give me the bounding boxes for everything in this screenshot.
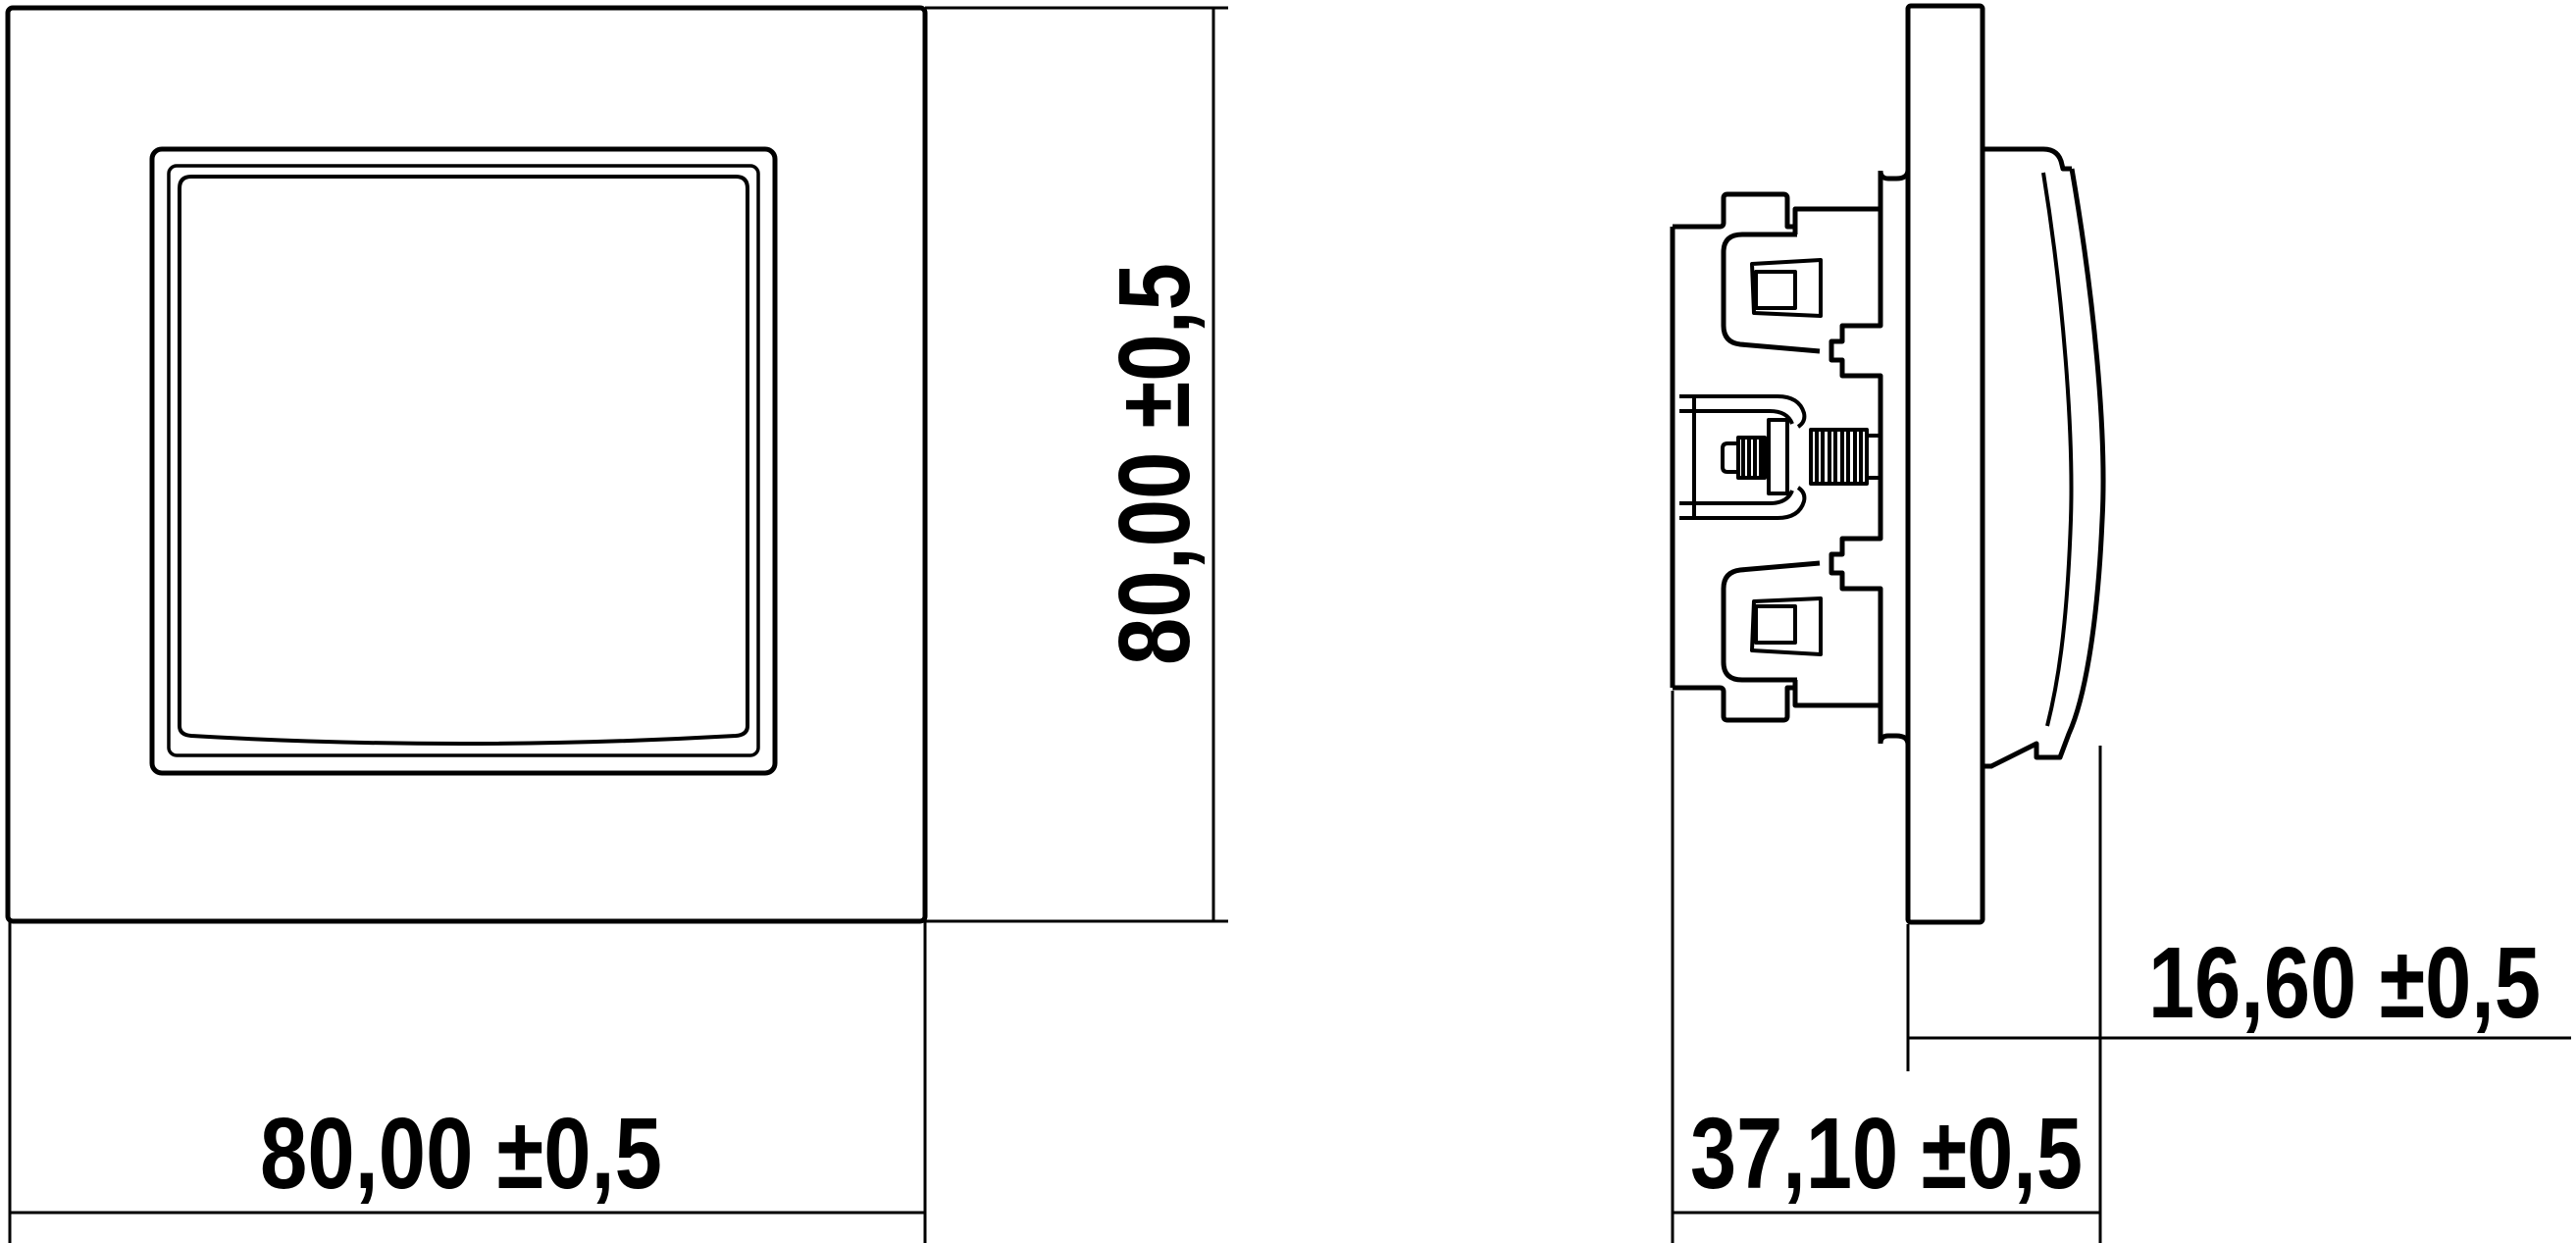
clamp-screw-left [1723,438,1765,478]
claw-arm-top [1795,209,1879,234]
dim-total-depth-label: 37,10 ±0,5 [1690,1097,2083,1210]
claw-window-top [1756,272,1795,308]
rocker-button-outer [152,149,775,773]
rocker-side-inner-curve [2043,173,2071,726]
dimensions: 80,00 ±0,5 80,00 ±0,5 37,10 ±0,5 16,60 ±… [10,8,2571,1243]
support-rail-top-inner [1679,411,1792,424]
mounting-claw-bottom [1724,563,1820,680]
rocker-button-frame [169,166,758,755]
screw-head-left [1723,443,1738,472]
claw-arm-bottom [1795,680,1879,705]
rocker-side-profile [1983,169,2103,766]
clamp-screw-right [1811,430,1880,484]
side-view [1673,6,2103,922]
dim-front-depth-label: 16,60 ±0,5 [2148,926,2541,1039]
side-cover-plate [1908,6,1983,922]
screw-shaft-right [1811,430,1867,484]
technical-drawing-page: 80,00 ±0,5 80,00 ±0,5 37,10 ±0,5 16,60 ±… [0,0,2576,1243]
front-view [8,8,925,921]
cover-plate-outline [8,8,925,921]
plate-insert-fillet-bottom [1880,736,1908,745]
switch-dimension-drawing: 80,00 ±0,5 80,00 ±0,5 37,10 ±0,5 16,60 ±… [0,0,2576,1243]
plate-insert-fillet-top [1880,170,1908,179]
mounting-claw-top [1724,234,1820,351]
dim-front-height-label: 80,00 ±0,5 [1098,263,1211,665]
switch-body-top-edge [1673,194,1795,227]
claw-window-bottom [1756,606,1795,643]
rocker-side-top-edge [1983,149,2072,169]
rocker-button-face [180,177,747,744]
switch-body-bottom-edge [1673,688,1795,720]
dim-front-width-label: 80,00 ±0,5 [260,1097,662,1210]
terminal-plate [1769,420,1787,493]
